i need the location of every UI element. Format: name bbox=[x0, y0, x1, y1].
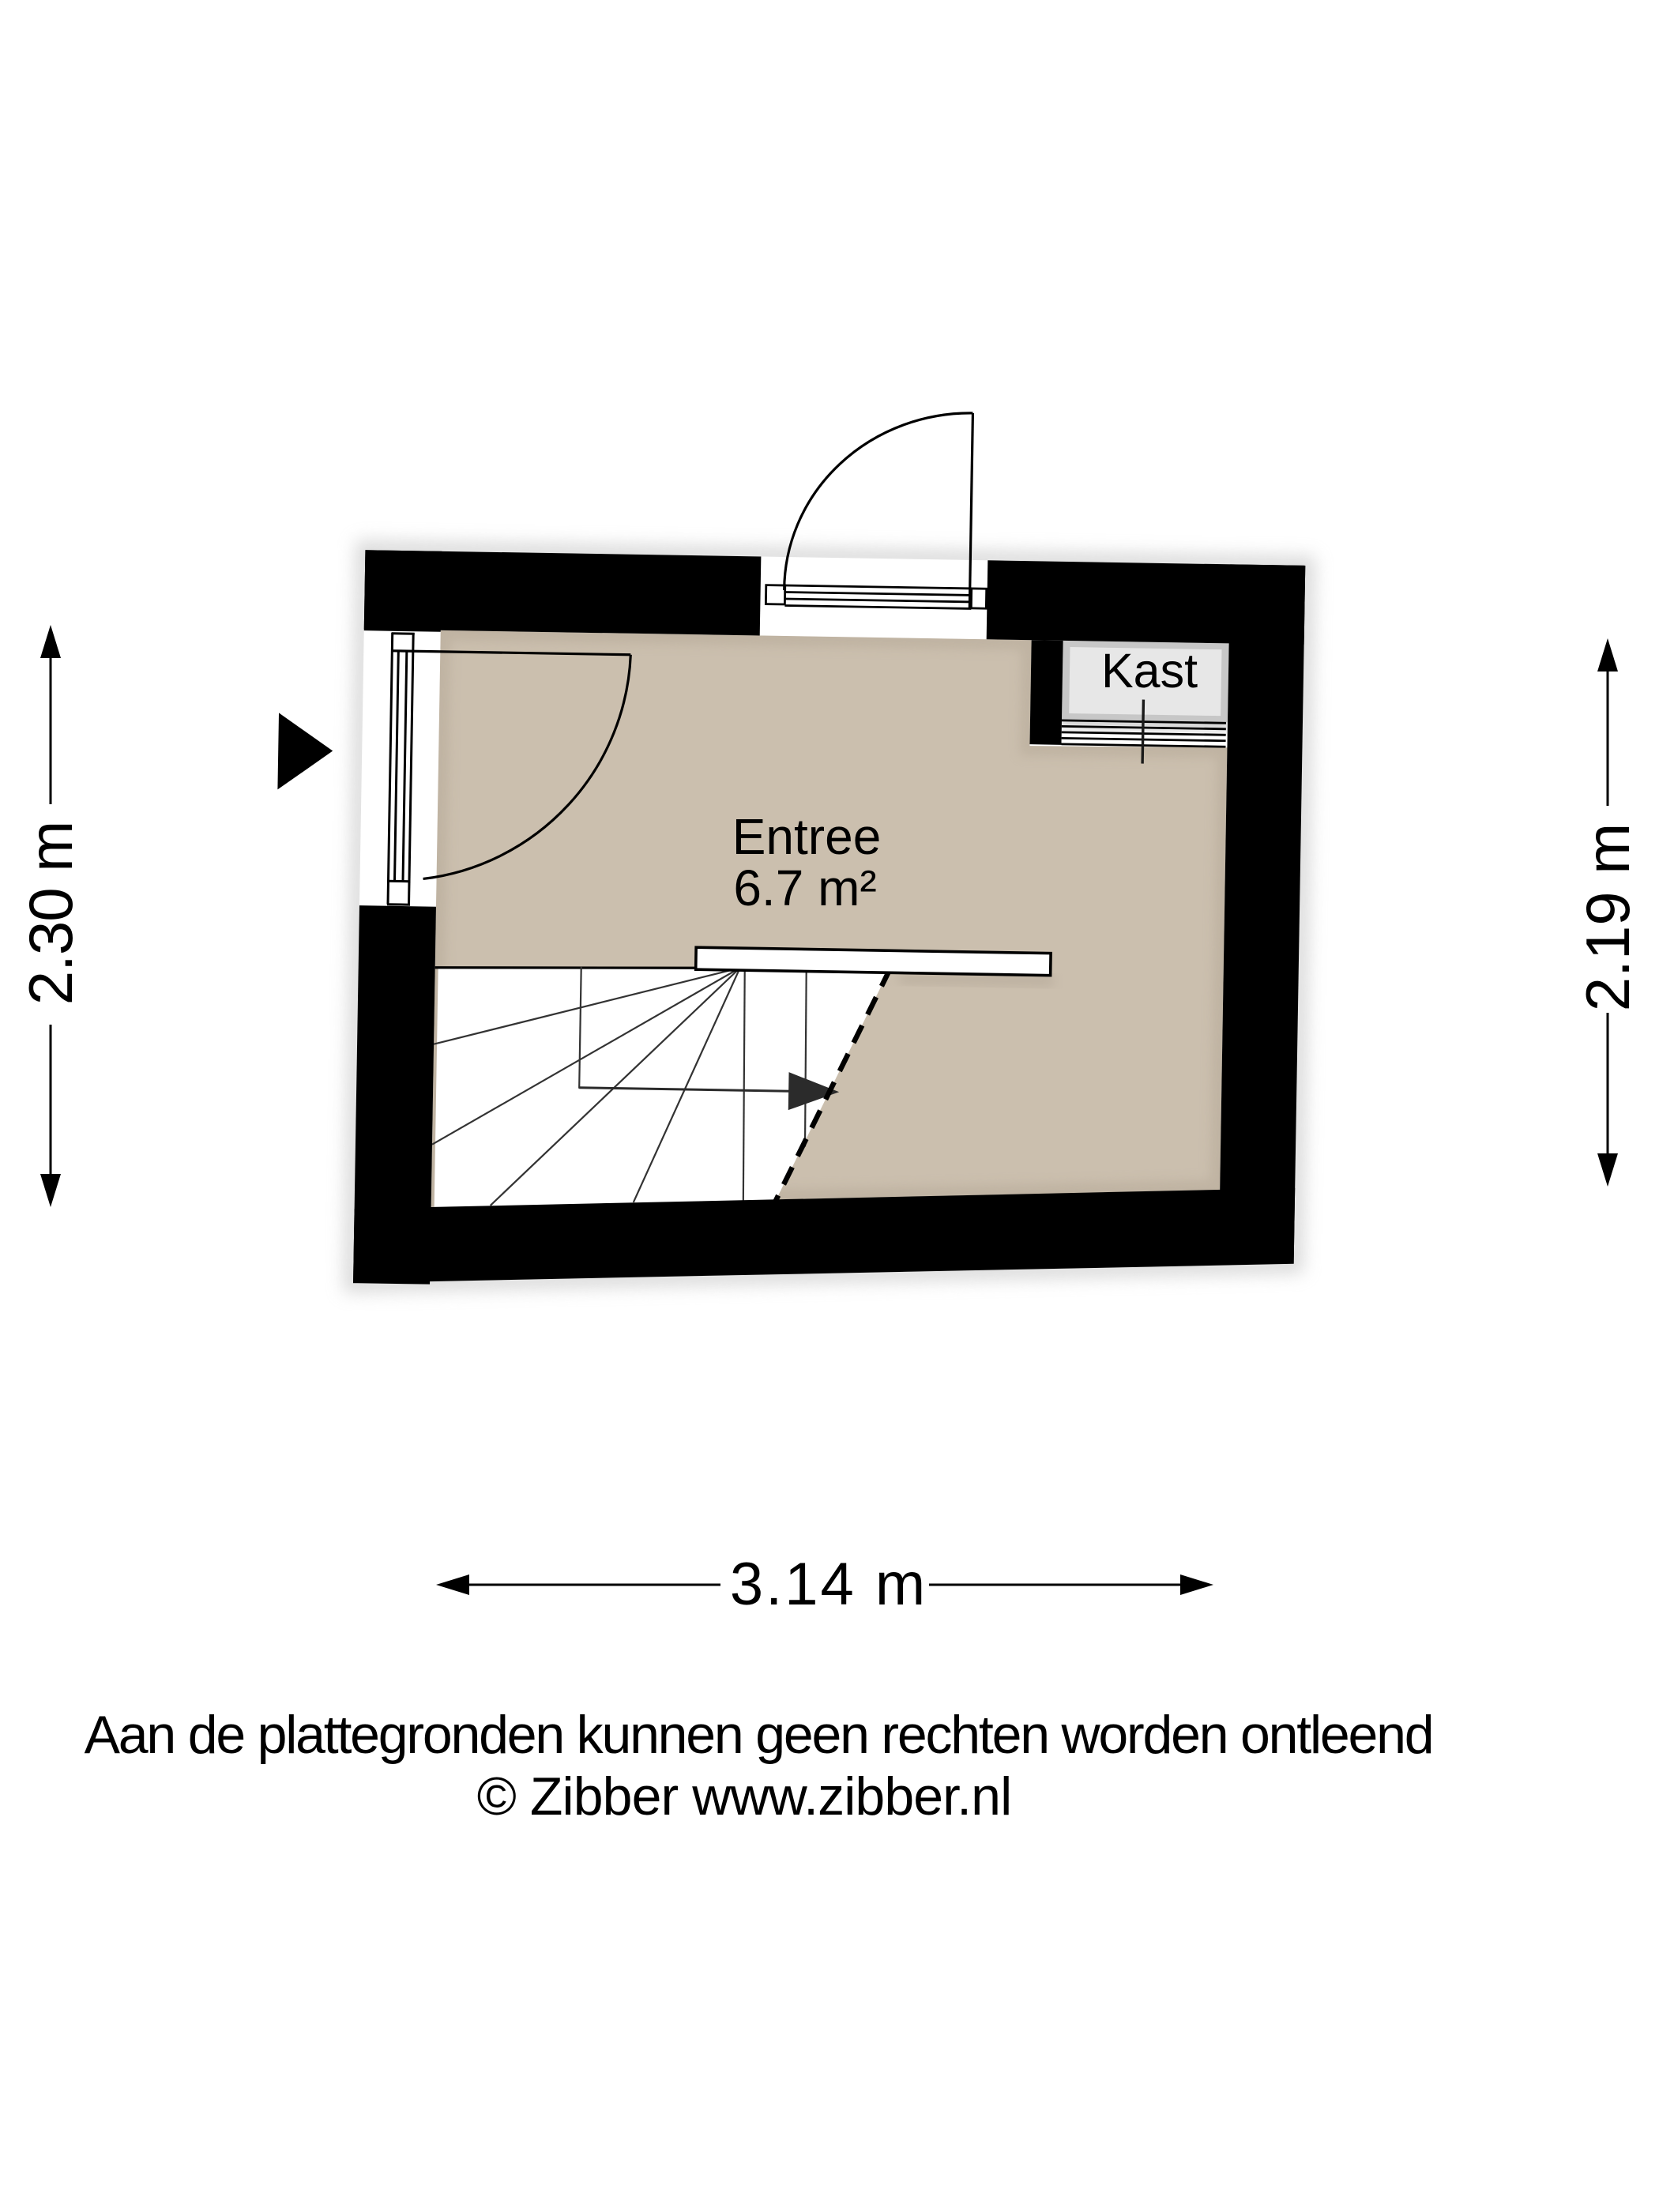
svg-text:3.14 m: 3.14 m bbox=[730, 1551, 927, 1618]
svg-text:Kast: Kast bbox=[1101, 644, 1198, 698]
svg-text:Entree: Entree bbox=[732, 808, 882, 865]
svg-text:Aan de plattegronden kunnen ge: Aan de plattegronden kunnen geen rechten… bbox=[85, 1705, 1433, 1765]
svg-text:2.19 m: 2.19 m bbox=[1573, 823, 1642, 1011]
svg-text:6.7 m²: 6.7 m² bbox=[733, 860, 876, 916]
svg-text:© Zibber www.zibber.nl: © Zibber www.zibber.nl bbox=[477, 1766, 1012, 1826]
svg-text:2.30 m: 2.30 m bbox=[16, 822, 85, 1005]
